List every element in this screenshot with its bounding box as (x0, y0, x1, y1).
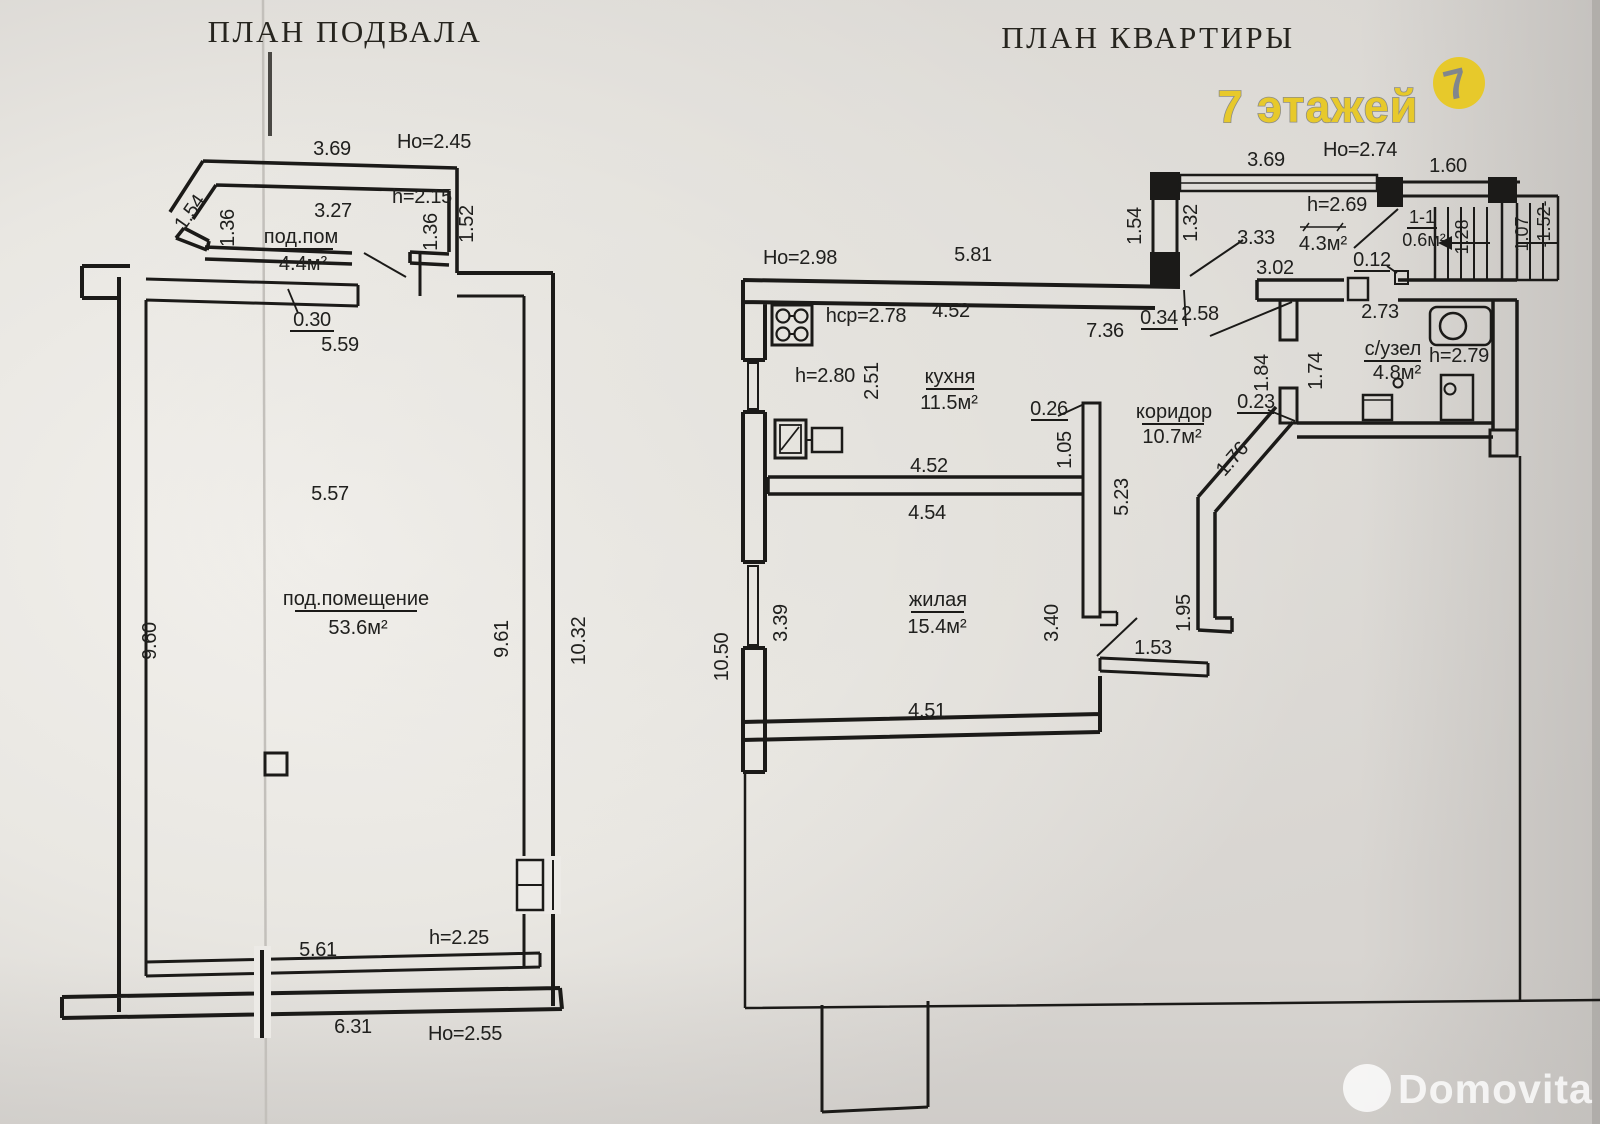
dim-label: 3.69 (1247, 149, 1285, 171)
dim-label: 1.32 (1180, 204, 1202, 242)
dim-label: 1.53 (1134, 637, 1172, 659)
dim-label: 2.51 (861, 362, 883, 400)
dim-label: 4.52 (910, 455, 948, 477)
dim-label: 3.02 (1256, 257, 1294, 279)
room-area: 4.3м² (1299, 233, 1348, 255)
room-area: 53.6м² (328, 617, 388, 639)
dim-label: 3.27 (314, 200, 352, 222)
dim-label: 1-1 (1409, 207, 1435, 227)
fold-break (254, 946, 271, 1038)
dim-label: 2.73 (1361, 301, 1399, 323)
brand-logo-circle-icon (1343, 1064, 1391, 1112)
dim-label: 1.84 (1251, 354, 1273, 392)
room-area: 10.7м² (1142, 426, 1202, 448)
room-name: под.пом (264, 226, 338, 248)
dim-label: h=2.80 (795, 365, 855, 387)
dim-label: 1.36 (217, 209, 239, 247)
room-name: коридор (1136, 401, 1212, 423)
dim-label: 0.12 (1353, 249, 1391, 271)
scanned-floor-plan: ПЛАН ПОДВАЛА 3.69 Но=2.45 3.27 h= (0, 0, 1600, 1124)
dim-label: Но=2.45 (397, 131, 471, 153)
dim-label: 0.30 (293, 309, 331, 331)
dim-label: 10.50 (711, 633, 733, 682)
column-block (1150, 172, 1180, 200)
dim-label: 9.60 (139, 622, 161, 660)
dim-label: Но=2.55 (428, 1023, 502, 1045)
floor-plan-canvas: ПЛАН ПОДВАЛА 3.69 Но=2.45 3.27 h= (0, 0, 1600, 1124)
dim-label: 1.52 (456, 205, 478, 243)
dim-label: 2.58 (1181, 303, 1219, 325)
apartment-title: ПЛАН КВАРТИРЫ (1001, 20, 1294, 55)
dim-label: Но=2.98 (763, 247, 837, 269)
dim-label: h=2.25 (429, 927, 489, 949)
dim-label: hcp=2.78 (826, 305, 907, 327)
dim-label: 1.95 (1173, 594, 1195, 632)
basement-window (513, 856, 561, 914)
room-name: под.помещение (283, 588, 429, 610)
dim-label: 5.57 (311, 483, 349, 505)
dim-label: 3.39 (770, 604, 792, 642)
dim-label: 5.23 (1111, 478, 1133, 516)
dim-label: 3.33 (1237, 227, 1275, 249)
basement-title: ПЛАН ПОДВАЛА (208, 14, 483, 49)
dim-label: h=2.15 (392, 186, 452, 208)
dim-label: 1.74 (1305, 352, 1327, 390)
room-area: 11.5м² (920, 392, 978, 414)
dim-label: 7.36 (1086, 320, 1124, 342)
scan-edge-shadow (1592, 0, 1600, 1124)
dim-label: 3.69 (313, 138, 351, 160)
room-name: с/узел (1365, 338, 1422, 360)
dim-label: h=2.69 (1307, 194, 1367, 216)
room-name: жилая (909, 589, 967, 611)
brand-watermark: Domovita (1343, 1064, 1593, 1112)
room-area: 4.4м² (279, 253, 328, 275)
dim-label: 1.54 (1124, 207, 1146, 245)
brand-name: Domovita (1398, 1066, 1593, 1112)
fold-dark-mark (268, 52, 272, 136)
dim-label: -1.52- (1534, 200, 1554, 247)
dim-label: 5.61 (299, 939, 337, 961)
dim-label: h=2.79 (1429, 345, 1489, 367)
dim-label: 1.05 (1054, 431, 1076, 469)
dim-label: 4.51 (908, 700, 946, 722)
column-block (1377, 177, 1403, 207)
column-block (1150, 252, 1180, 286)
dim-label: 5.59 (321, 334, 359, 356)
room-area: 4.8м² (1373, 362, 1422, 384)
dim-label: 0.34 (1140, 307, 1178, 329)
dim-label: 0.26 (1030, 398, 1068, 420)
paper-background (0, 0, 1600, 1124)
dim-label: Но=2.74 (1323, 139, 1397, 161)
dim-label: 0.23 (1237, 391, 1275, 413)
dim-label: 4.52 (932, 300, 970, 322)
dim-label: 1.07 (1512, 216, 1532, 251)
room-area: 15.4м² (907, 616, 967, 638)
dim-label: 1.36 (420, 213, 442, 251)
dim-label: 6.31 (334, 1016, 372, 1038)
dim-label: 4.54 (908, 502, 946, 524)
dim-label: 5.81 (954, 244, 992, 266)
dim-label: 9.61 (491, 620, 513, 658)
watermark-text: 7 этажей (1218, 81, 1419, 132)
room-name: кухня (925, 366, 976, 388)
dim-label: 1.60 (1429, 155, 1467, 177)
room-area: 0.6м² (1402, 230, 1445, 250)
dim-label: 3.40 (1041, 604, 1063, 642)
dim-label: 1.28 (1452, 219, 1472, 254)
dim-label: 10.32 (568, 617, 590, 666)
